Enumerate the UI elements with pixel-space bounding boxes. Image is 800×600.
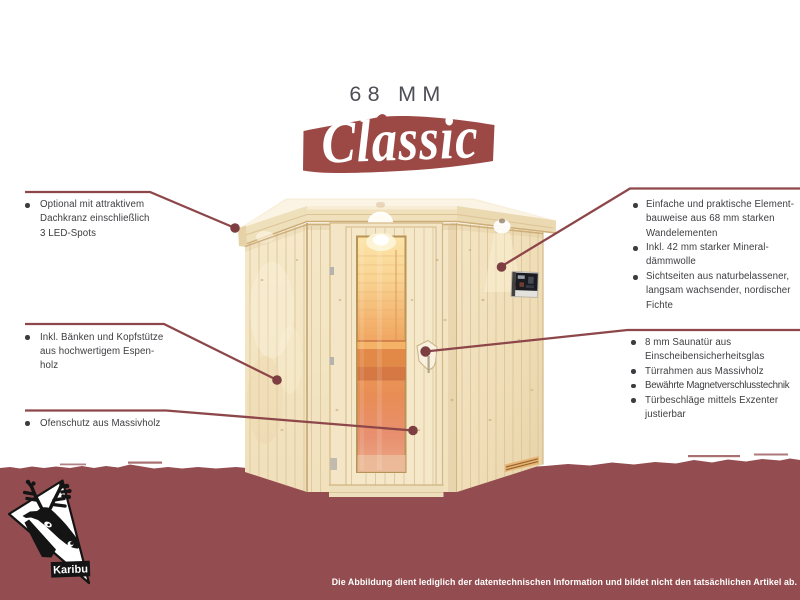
- svg-text:Karibu: Karibu: [53, 563, 88, 576]
